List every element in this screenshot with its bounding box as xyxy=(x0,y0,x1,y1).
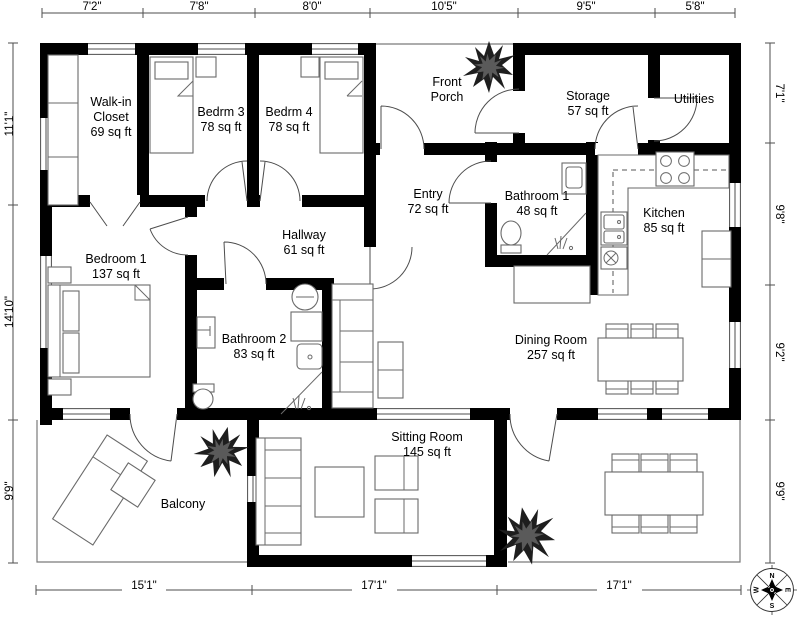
room-label-entry: Entry xyxy=(413,187,443,201)
closet-shelves xyxy=(48,55,78,205)
wall-sink-bathroom2 xyxy=(197,317,215,348)
dim-top-2: 7'8" xyxy=(189,1,208,13)
dim-right-4: 9'9" xyxy=(773,481,785,500)
dim-top-1: 7'2" xyxy=(82,1,101,13)
armchair-2 xyxy=(375,499,418,533)
dim-top-4: 10'5" xyxy=(431,1,456,13)
plant-porch-icon xyxy=(463,41,515,93)
window xyxy=(63,408,110,420)
compass-north-label: N xyxy=(769,573,774,580)
dim-bottom-2: 17'1" xyxy=(361,580,386,592)
side-table xyxy=(378,342,403,398)
floor-plan-drawing: 7'2" 7'8" 8'0" 10'5" 9'5" 5'8" 11'1" 14'… xyxy=(0,0,800,619)
dim-right-1: 7'1" xyxy=(773,83,785,102)
dim-bottom-1: 15'1" xyxy=(131,580,156,592)
room-label-balcony: Balcony xyxy=(161,497,206,511)
dishwasher xyxy=(601,247,627,269)
door-entry-hallway xyxy=(364,247,412,289)
window xyxy=(377,408,470,420)
door-closet-bifold xyxy=(90,195,140,226)
dining-table xyxy=(598,324,683,394)
door-bedroom1 xyxy=(150,217,197,255)
room-label-bedrm3: Bedrm 3 xyxy=(197,105,244,119)
room-label-bedrm4: Bedrm 4 xyxy=(265,105,312,119)
shower-bathroom1 xyxy=(547,213,586,255)
room-area-sitting-room: 145 sq ft xyxy=(403,445,451,459)
dim-top-5: 9'5" xyxy=(576,1,595,13)
room-label-dining-room: Dining Room xyxy=(515,333,587,347)
room-area-dining-room: 257 sq ft xyxy=(527,348,575,362)
room-area-bathroom1: 48 sq ft xyxy=(517,204,559,218)
room-label-walk-in-closet: Closet xyxy=(93,110,129,124)
plant-balcony-icon xyxy=(189,420,253,484)
lounge-couch xyxy=(332,284,373,408)
room-label-walk-in-closet: Walk-in xyxy=(90,95,131,109)
dim-right-3: 9'2" xyxy=(773,342,785,361)
room-label-storage: Storage xyxy=(566,89,610,103)
fridge xyxy=(702,231,731,287)
room-area-bathroom2: 83 sq ft xyxy=(234,347,276,361)
room-area-kitchen: 85 sq ft xyxy=(644,221,686,235)
room-label-sitting-room: Sitting Room xyxy=(391,430,463,444)
dim-top-6: 5'8" xyxy=(685,1,704,13)
window xyxy=(729,183,741,227)
toilet-bathroom1 xyxy=(501,221,521,253)
window xyxy=(312,43,358,55)
dim-right-2: 9'8" xyxy=(773,204,785,223)
room-area-walk-in-closet: 69 sq ft xyxy=(91,125,133,139)
door-entry-bathroom1 xyxy=(449,161,497,203)
window xyxy=(88,43,135,55)
window xyxy=(598,408,647,420)
dim-left-2: 14'10" xyxy=(4,296,16,328)
room-area-bedrm4: 78 sq ft xyxy=(269,120,311,134)
door-bedrm4 xyxy=(260,161,302,207)
kitchen-sink xyxy=(601,212,627,245)
window xyxy=(198,43,245,55)
room-label-front-porch: Porch xyxy=(431,90,464,104)
door-porch-entry xyxy=(380,106,424,155)
room-area-bedroom1: 137 sq ft xyxy=(92,267,140,281)
door-bedrm3 xyxy=(205,161,247,207)
coffee-table xyxy=(315,467,364,517)
room-label-kitchen: Kitchen xyxy=(643,206,685,220)
door-porch-storage xyxy=(475,89,525,133)
basin-bathroom2 xyxy=(291,284,322,341)
room-label-hallway: Hallway xyxy=(282,228,327,242)
room-label-utilities: Utilities xyxy=(674,92,714,106)
compass-east-label: E xyxy=(784,588,791,593)
room-area-entry: 72 sq ft xyxy=(408,202,450,216)
room-area-hallway: 61 sq ft xyxy=(284,243,326,257)
dim-left-3: 9'9" xyxy=(4,481,16,500)
shower-bathroom2 xyxy=(281,372,322,414)
bed-bedroom1 xyxy=(48,267,150,395)
deck-table xyxy=(605,454,703,533)
dim-bottom-3: 17'1" xyxy=(606,580,631,592)
console-desk xyxy=(514,266,590,303)
door-bathroom2 xyxy=(224,242,266,290)
room-label-bathroom2: Bathroom 2 xyxy=(222,332,287,346)
sofa-sitting-room xyxy=(256,438,301,545)
armchair-1 xyxy=(375,456,418,490)
room-area-storage: 57 sq ft xyxy=(568,104,610,118)
room-label-bathroom1: Bathroom 1 xyxy=(505,189,570,203)
window xyxy=(662,408,708,420)
room-area-bedrm3: 78 sq ft xyxy=(201,120,243,134)
compass-west-label: W xyxy=(754,586,761,593)
stove xyxy=(656,152,694,186)
furniture xyxy=(48,55,731,545)
door-balcony xyxy=(130,408,177,461)
floor-plan-canvas: 7'2" 7'8" 8'0" 10'5" 9'5" 5'8" 11'1" 14'… xyxy=(0,0,800,619)
toilet-bathroom2 xyxy=(193,384,214,409)
sink2-bathroom2 xyxy=(297,344,322,369)
dim-top-3: 8'0" xyxy=(302,1,321,13)
room-label-bedroom1: Bedroom 1 xyxy=(85,252,146,266)
dim-left-1: 11'1" xyxy=(4,112,16,137)
room-label-front-porch: Front xyxy=(432,75,462,89)
window xyxy=(729,322,741,368)
window xyxy=(412,555,486,567)
compass-rose-icon: N E S W xyxy=(747,565,797,615)
door-deck xyxy=(510,408,557,461)
compass-south-label: S xyxy=(770,603,775,610)
